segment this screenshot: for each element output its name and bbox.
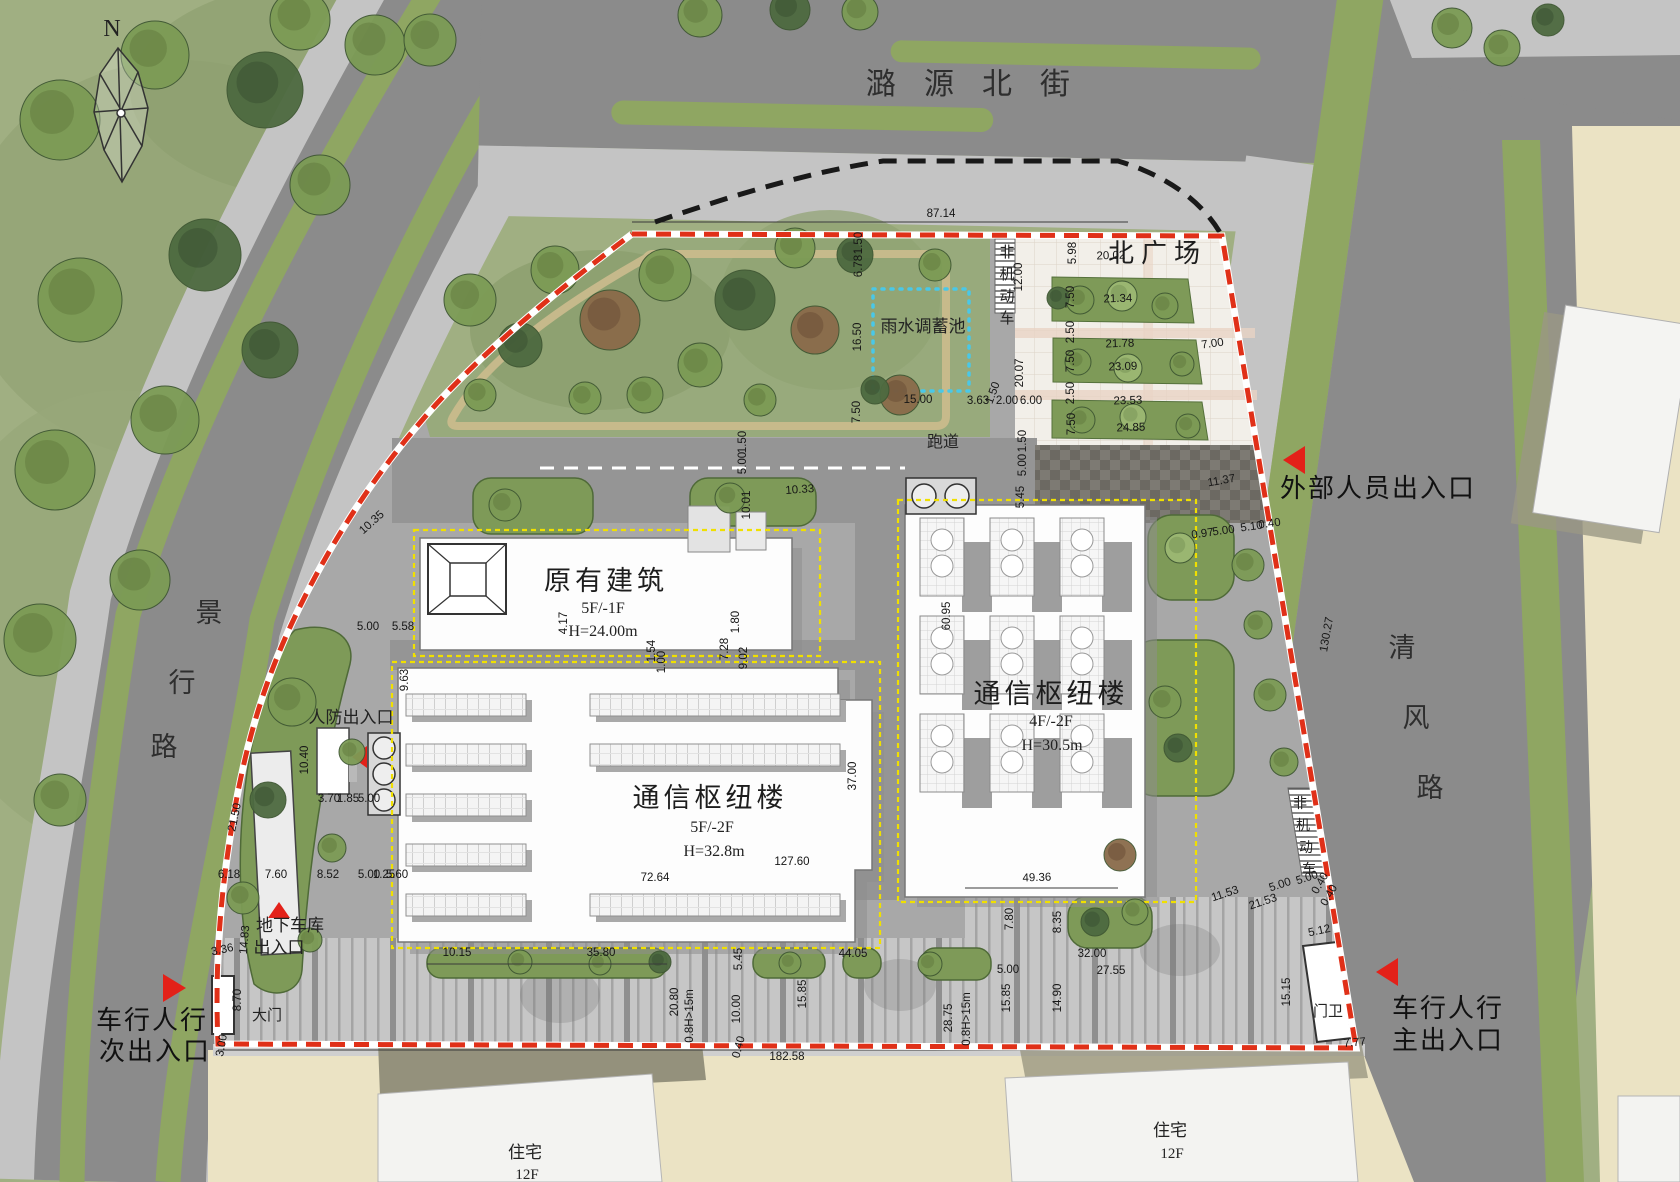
tree-icon <box>1489 35 1509 55</box>
tree-icon <box>301 931 314 944</box>
roof-equipment-shadow <box>1102 640 1132 710</box>
roof-equipment-shadow <box>1032 542 1062 612</box>
tree-icon <box>298 163 331 196</box>
tree-icon <box>249 329 280 360</box>
tree-icon <box>865 380 880 395</box>
roof-equipment-shadow <box>1032 738 1062 808</box>
tree-icon <box>748 388 766 406</box>
roof-equipment-fan-icon <box>931 555 953 577</box>
tree-icon <box>782 955 794 967</box>
roof-equipment-fan-icon <box>1071 725 1093 747</box>
tree-icon <box>274 684 300 710</box>
building-residential-right <box>1005 1062 1358 1182</box>
tree-icon <box>1274 752 1289 767</box>
tree-icon <box>178 228 218 268</box>
tree-icon <box>1050 290 1062 302</box>
roof-equipment-fan-icon <box>1071 751 1093 773</box>
skylight <box>428 544 506 614</box>
tree-icon <box>130 30 167 67</box>
bike-parking-top <box>995 239 1015 313</box>
site-plan-page: N 潞源北街 景 行 路 清 风 路 北广场 雨水调蓄池 跑道 非 机 动 车 … <box>0 0 1680 1182</box>
tree-icon <box>1258 683 1276 701</box>
tree-icon <box>451 281 480 310</box>
tree-icon <box>723 278 756 311</box>
tree-icon <box>684 349 708 373</box>
tree-icon <box>1155 296 1169 310</box>
tree-icon <box>41 781 70 810</box>
tree-icon <box>1068 352 1082 366</box>
tree-icon <box>1153 690 1171 708</box>
roof-equipment-fan-icon <box>931 751 953 773</box>
roof-equipment-fan-icon <box>931 529 953 551</box>
roof-equipment-grid <box>920 518 1132 808</box>
site-plan-drawing: N 潞源北街 景 行 路 清 风 路 北广场 雨水调蓄池 跑道 非 机 动 车 … <box>0 0 1680 1182</box>
tree-icon <box>322 838 337 853</box>
tree-icon <box>342 742 356 756</box>
roof-equipment-shadow <box>962 738 992 808</box>
tree-icon <box>1168 738 1183 753</box>
roof-equipment-circles <box>368 733 400 815</box>
tree-icon <box>719 487 736 504</box>
roof-equipment-shadow <box>1102 738 1132 808</box>
tree-icon <box>588 298 621 331</box>
roof-equipment-fan-icon <box>931 725 953 747</box>
tree-icon <box>573 386 591 404</box>
tree-icon <box>921 955 934 968</box>
tree-icon <box>493 493 511 511</box>
building-southeast <box>1618 1096 1680 1182</box>
tree-icon <box>1236 553 1254 571</box>
tree-icon <box>1118 358 1133 373</box>
tree-icon <box>231 886 249 904</box>
tree-icon <box>468 383 486 401</box>
tree-icon <box>632 382 652 402</box>
roof-equipment-shadow <box>962 640 992 710</box>
tree-icon <box>1111 285 1128 302</box>
tree-icon <box>140 395 177 432</box>
tree-icon <box>1085 912 1100 927</box>
tree-icon <box>118 558 151 591</box>
tree-icon <box>1125 902 1139 916</box>
tree-icon <box>1173 355 1186 368</box>
tree-icon <box>1437 13 1459 35</box>
roof-equipment-fan-icon <box>1071 653 1093 675</box>
tree-icon <box>30 90 74 134</box>
building-hub-main <box>368 668 884 954</box>
roof-equipment-fan-icon <box>1001 653 1023 675</box>
tree-icon <box>411 21 440 50</box>
roof-equipment-fan-icon <box>1001 627 1023 649</box>
tree-icon <box>842 242 862 262</box>
tree-icon <box>1169 537 1186 554</box>
tree-icon <box>537 252 563 278</box>
tree-icon <box>923 253 941 271</box>
tree-icon <box>1072 410 1086 424</box>
roof-equipment-fan-icon <box>931 653 953 675</box>
roof-equipment-fan-icon <box>931 627 953 649</box>
roof-equipment-shadow <box>1102 542 1132 612</box>
roof-equipment-fan-icon <box>1071 555 1093 577</box>
roof-equipment-fan-icon <box>1001 529 1023 551</box>
tree-icon <box>353 23 386 56</box>
roof-equipment-fan-icon <box>1071 627 1093 649</box>
tree-icon <box>1179 417 1192 430</box>
tree-icon <box>1123 407 1137 421</box>
roof-equipment-fan-icon <box>1001 555 1023 577</box>
tree-icon <box>49 269 95 315</box>
roof-equipment-fan-icon <box>1071 529 1093 551</box>
tree-icon <box>1108 843 1126 861</box>
tree-icon <box>797 312 823 338</box>
roof-equipment-shadow <box>962 542 992 612</box>
tree-icon <box>646 255 675 284</box>
tree-icon <box>1536 8 1554 26</box>
tree-icon <box>13 613 53 653</box>
tree-icon <box>1248 615 1263 630</box>
roof-equipment-shadow <box>1032 640 1062 710</box>
roof-equipment-fan-icon <box>1001 725 1023 747</box>
tree-icon <box>25 440 69 484</box>
tree-icon <box>255 787 275 807</box>
tree-icon <box>1070 290 1085 305</box>
tree-icon <box>237 62 279 104</box>
tree-icon <box>592 956 604 968</box>
roof-equipment-fan-icon <box>1001 751 1023 773</box>
